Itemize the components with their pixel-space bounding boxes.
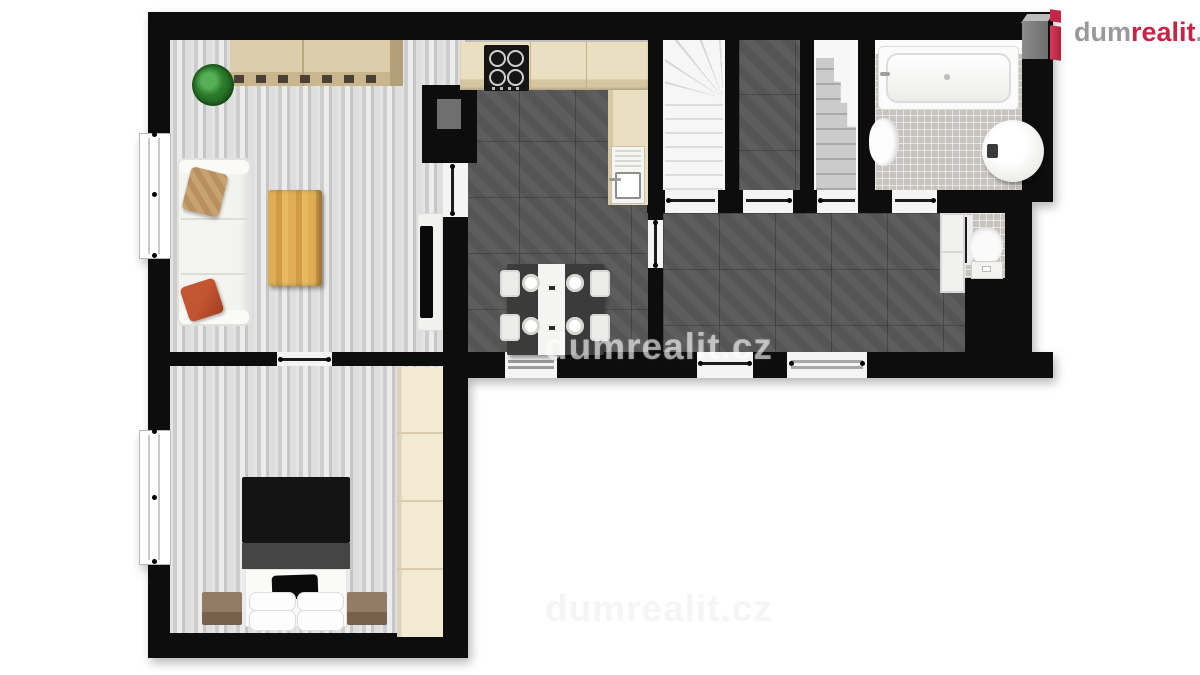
logo-text-dum: dum [1074, 17, 1131, 47]
bathtub [878, 46, 1019, 110]
burner [507, 69, 524, 86]
wall-compartments-a [647, 190, 665, 213]
wall-kitchen-stairs [648, 38, 663, 190]
window-hinge [152, 132, 157, 137]
bathtub-drain [944, 74, 950, 80]
bidet-toilet [869, 118, 899, 166]
plate [566, 274, 584, 292]
sofa-cushion-line [181, 273, 247, 275]
closet-floor [739, 38, 800, 190]
heater-gauge [987, 144, 998, 158]
hall-cabinet [940, 213, 965, 293]
chimney-notch [437, 99, 461, 129]
door-hinge [450, 211, 455, 216]
bed-footboard [242, 477, 350, 543]
white-pillow [249, 592, 296, 611]
door-hinge [450, 164, 455, 169]
window-hinge [152, 429, 157, 434]
dining-chair [500, 270, 520, 297]
cooktop [484, 45, 529, 91]
counter-seam [530, 42, 531, 90]
wall-kitchen-hall-a [648, 213, 663, 220]
wall-left-b [148, 257, 170, 430]
wall-hall-bottom-c [867, 352, 1053, 378]
burner [489, 69, 506, 86]
wall-stair2-bathroom [858, 38, 875, 190]
wardrobe-door-line [397, 500, 443, 502]
wc-toilet-tank [971, 261, 1003, 279]
wc-toilet-bowl [969, 227, 1003, 264]
wall-left-a [148, 38, 170, 135]
potted-plant [192, 64, 234, 106]
dining-chair [590, 270, 610, 297]
counter-seam [586, 42, 587, 90]
watermark-center: dumrealit.cz [545, 326, 773, 368]
burner [507, 50, 524, 67]
closet-door [743, 190, 793, 213]
watermark-bottom: dumrealit.cz [545, 588, 773, 630]
window-frame-bar [158, 138, 160, 254]
wall-bedroom-right [443, 363, 468, 658]
plate [522, 317, 540, 335]
stair2-door [817, 190, 858, 213]
sink-basin [615, 172, 641, 199]
door-hinge [666, 198, 671, 203]
bathroom-door [892, 190, 937, 213]
wall-stair1-closet [725, 38, 739, 190]
cutlery [549, 286, 555, 290]
living-window [139, 133, 171, 259]
logo-icon-gray-face [1022, 21, 1048, 59]
logo-text: dumrealit.cz [1074, 19, 1200, 46]
door-leaf [451, 166, 454, 214]
wall-living-bottom-a [148, 352, 277, 366]
staircase-up-winders [665, 38, 723, 98]
door-leaf [746, 199, 790, 202]
living-kitchen-door [443, 163, 468, 217]
wall-top [148, 12, 1053, 40]
flush-button [983, 267, 990, 271]
wall-living-kitchen [443, 217, 468, 352]
living-bedroom-door [277, 352, 332, 366]
door-hinge [860, 361, 865, 366]
logo-icon-red-dot [1050, 9, 1061, 23]
plate [522, 274, 540, 292]
burner [489, 50, 506, 67]
water-heater [982, 120, 1044, 182]
wall-wc-right [1005, 202, 1032, 352]
bed-blanket [242, 543, 350, 569]
sideboard-drawer-slots [234, 75, 386, 83]
bathtub-faucet [880, 72, 890, 76]
window-hinge [152, 495, 157, 500]
wardrobe-door-line [397, 432, 443, 434]
window-hinge [152, 559, 157, 564]
wall-closet-stair2 [800, 38, 814, 190]
window-hinge [152, 253, 157, 258]
door-hinge [278, 357, 283, 362]
door-leaf [895, 199, 934, 202]
nightstand-right [347, 592, 387, 625]
logo-text-realit: realit [1131, 17, 1196, 47]
door-leaf [668, 199, 715, 202]
dumrealit-logo: dumrealit.cz [1018, 4, 1200, 60]
door-leaf [791, 366, 863, 369]
window-hinge [152, 192, 157, 197]
door-hinge [931, 198, 936, 203]
wall-living-bottom-b [332, 352, 443, 366]
door-hinge [818, 198, 823, 203]
door-hinge [789, 361, 794, 366]
sink-faucet [609, 178, 621, 181]
window-frame-bar [148, 435, 150, 560]
door-leaf [280, 358, 329, 361]
door-leaf [820, 199, 855, 202]
door-hinge [653, 220, 658, 225]
kitchen-hall-door [648, 220, 663, 268]
kitchen-sink [611, 146, 645, 204]
wall-compartments-d [858, 190, 892, 213]
stair1-door [665, 190, 718, 213]
wardrobe-door-line [397, 568, 443, 570]
sideboard [230, 40, 403, 86]
door-hinge [653, 263, 658, 268]
white-pillow [249, 610, 296, 631]
floorplan-render: dumrealit.cz dumrealit.cz dumrealit.cz [0, 0, 1200, 675]
dining-chair [500, 314, 520, 341]
nightstand-left [202, 592, 242, 625]
white-pillow [297, 610, 344, 631]
door-hinge [326, 357, 331, 362]
staircase-up-steps [665, 95, 723, 190]
coffee-table [268, 190, 322, 286]
window-frame-bar [158, 435, 160, 560]
bedroom-window [139, 430, 171, 565]
cabinet-shelf-line [942, 251, 963, 253]
wall-kitchen-bottom-a [443, 352, 505, 378]
sink-drainer [615, 150, 641, 168]
hall-glass-door [787, 352, 867, 378]
door-hinge [787, 198, 792, 203]
tv [420, 226, 433, 318]
logo-icon-red-body [1050, 25, 1061, 61]
wardrobe [397, 367, 443, 637]
door-leaf [791, 360, 863, 363]
wall-compartments-b [718, 190, 743, 213]
logo-text-cz: .cz [1196, 17, 1200, 47]
wall-wc-bottom [965, 278, 1005, 352]
door-leaf [654, 222, 657, 266]
dumrealit-house-icon [1018, 4, 1066, 60]
sofa-cushion-line [181, 218, 247, 220]
white-pillow [297, 592, 344, 611]
cooktop-controls [492, 87, 521, 90]
window-frame-bar [148, 138, 150, 254]
wall-compartments-c [793, 190, 817, 213]
